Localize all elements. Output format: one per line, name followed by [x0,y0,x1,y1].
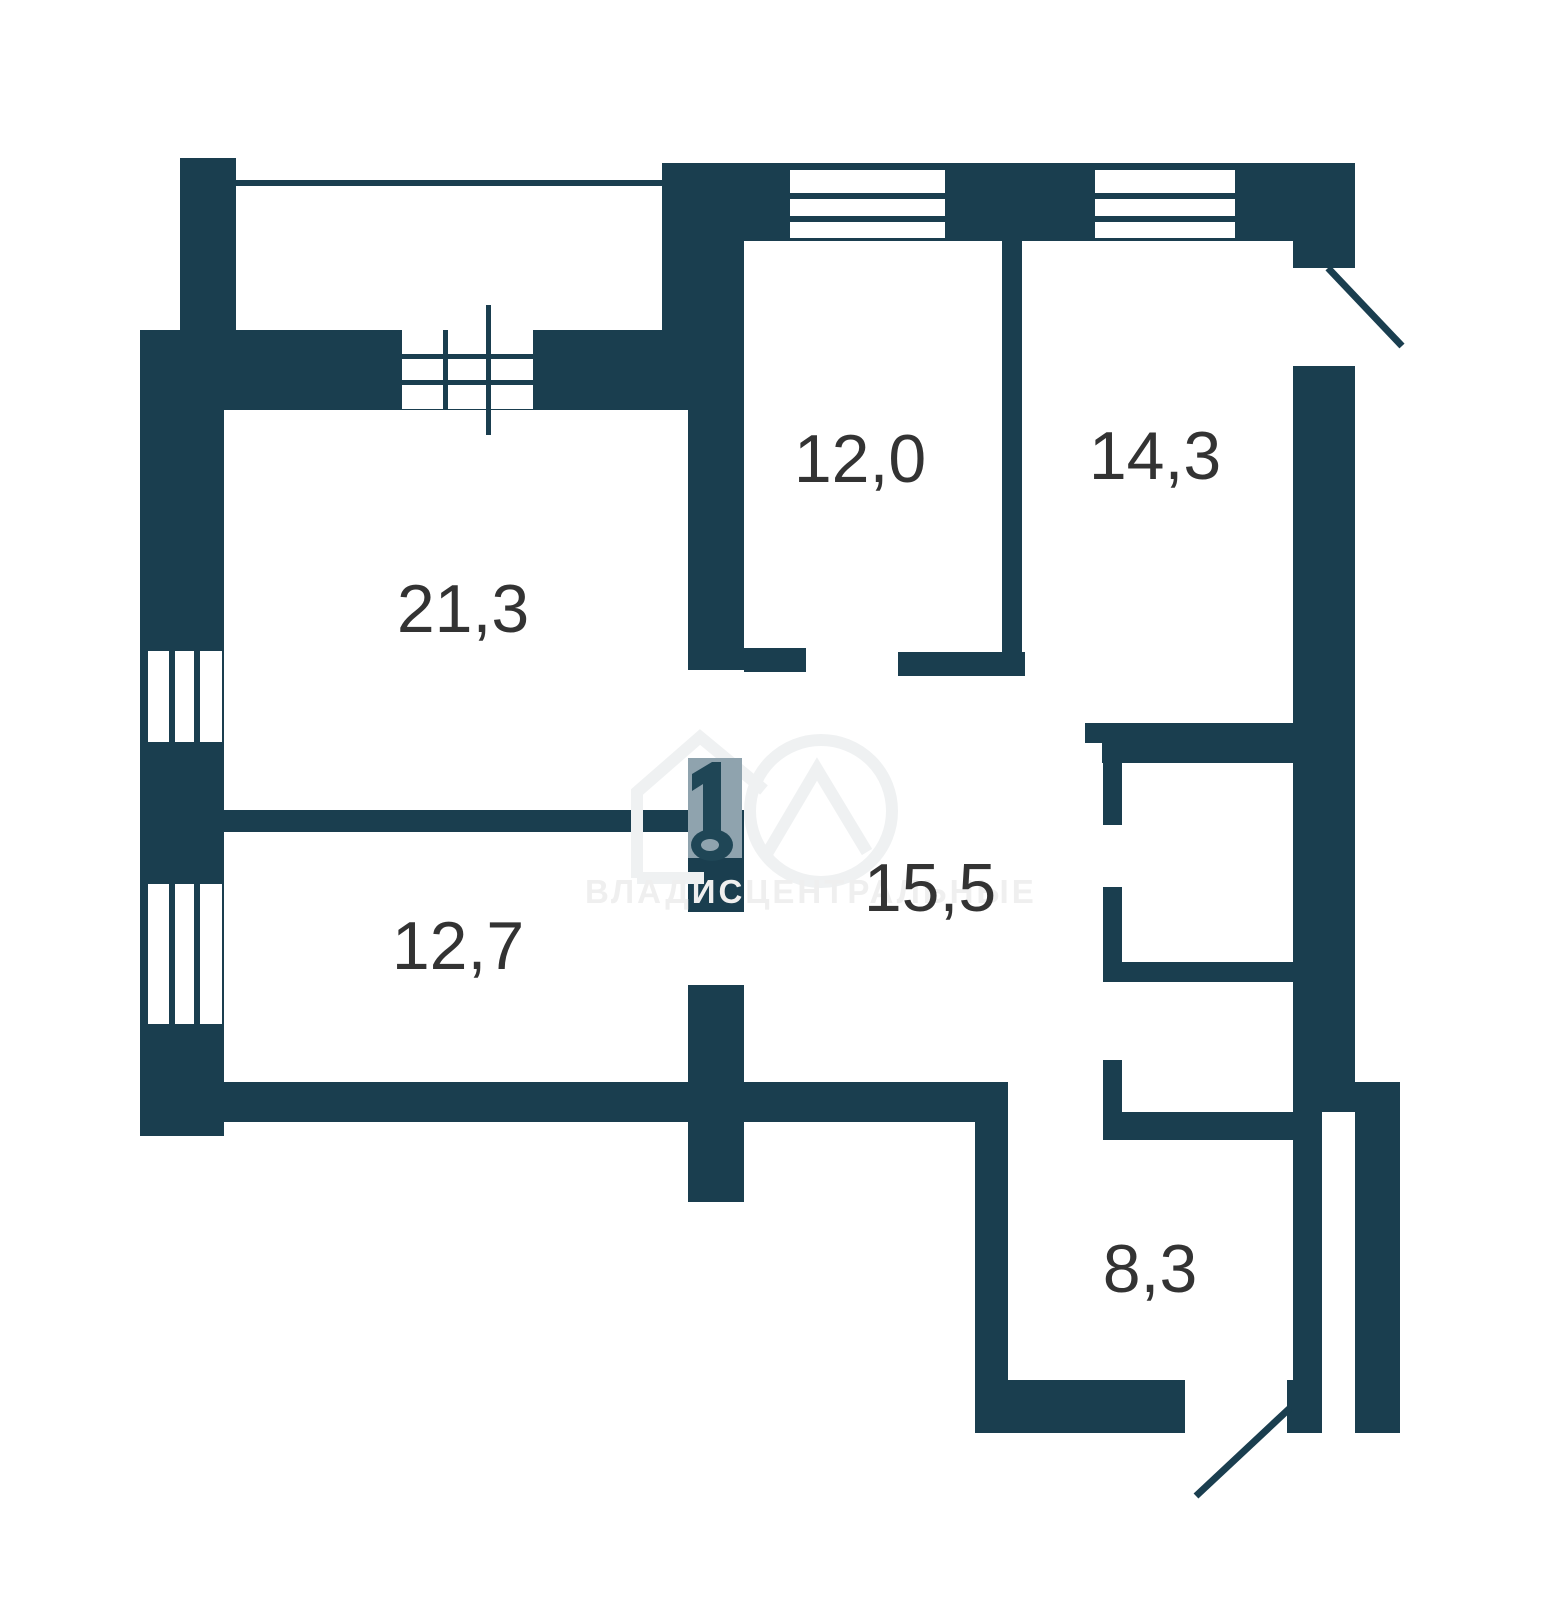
room-area-label-kitchen: 8,3 [1103,1231,1198,1307]
bottom-wall [224,1082,1008,1122]
window-left-2 [148,884,222,1024]
room-area-label-bedroom-top: 12,0 [794,421,926,497]
key-ring-hole [701,839,719,851]
bathroom-left-wall-b [1103,887,1122,962]
window-axis-line [486,305,491,435]
room-area-label-hallway: 15,5 [864,850,996,926]
wc-left-wall [1103,1060,1122,1112]
watermark-logo-block [688,758,742,861]
window-top-right [1095,170,1235,238]
main-top-wall [662,163,1355,241]
right-outer-wall-top [1293,163,1355,268]
divider-living-bedroomleft [224,810,744,832]
window-left-1 [148,651,222,742]
kitchen-bottom-wall [978,1380,1185,1433]
center-wall-upper [688,410,744,670]
bathroom-left-wall-a [1103,763,1122,825]
window-top-left [790,170,945,238]
center-wall-foot [744,648,806,672]
floor-plan-page: ВЛАДИСЦЕНТРАЛЬНЫЕ 21,3 12,0 14,3 15,5 12… [0,0,1541,1600]
wc-bottom-wall [1103,1112,1300,1140]
room-area-label-bedroom-left: 12,7 [392,908,524,984]
room-area-label-bedroom-right: 14,3 [1089,418,1221,494]
floor-plan: ВЛАДИСЦЕНТРАЛЬНЫЕ 21,3 12,0 14,3 15,5 12… [0,0,1541,1600]
kitchen-outer-right-wall [1355,1082,1400,1433]
bedroomright-bottom-wall-a [1085,723,1300,743]
balcony-front-line [236,180,669,186]
room-area-label-living: 21,3 [397,571,529,647]
right-outer-wall-main [1293,366,1355,1112]
kitchen-door-stub [1287,1380,1322,1433]
kitchen-inner-right-wall [1293,1112,1322,1380]
divider-bedroomtop-bedroomright [1002,241,1022,676]
balcony-left-stub-wall [180,158,236,330]
center-wall-lower [688,985,744,1202]
bathroom-wc-divider [1103,962,1300,982]
bedroomright-bottom-wall-b [1102,743,1300,763]
